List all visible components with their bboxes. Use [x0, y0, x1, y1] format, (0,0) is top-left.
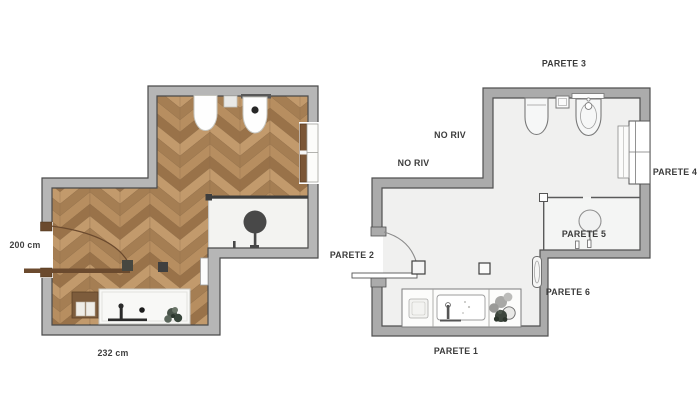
window-glass: [307, 124, 318, 182]
door-jamb-top: [41, 222, 53, 231]
window-frame: [629, 121, 650, 184]
label-no-riv-1: NO RIV: [434, 130, 466, 140]
label-parete-1: PARETE 1: [434, 346, 478, 356]
door-jamb-top: [371, 227, 386, 236]
bidet: [576, 98, 601, 136]
bathtub-faucet-stem: [447, 305, 450, 319]
label-parete-5: PARETE 5: [562, 229, 606, 239]
shower-glass-hinge: [206, 194, 213, 201]
vanity-cabinet: [72, 292, 98, 318]
door-jamb-bottom: [371, 278, 386, 287]
shower-valve: [250, 245, 259, 248]
door-leaf: [352, 273, 417, 278]
shower-handle-b: [588, 240, 592, 248]
bathtub-faucet-bar: [108, 319, 147, 322]
bathtub: [437, 295, 485, 320]
cabinet-drawer-right: [86, 302, 95, 316]
bathtub-drain: [139, 307, 145, 313]
bathtub-faucet-bar: [440, 320, 461, 322]
toilet: [525, 98, 548, 135]
window-frame-split: [300, 151, 307, 155]
window: [299, 122, 319, 184]
dimension-height-label: 200 cm: [9, 240, 40, 250]
toilet: [194, 96, 217, 131]
floorplan-canvas: 200 cm 232 cm: [0, 0, 700, 406]
shower-handle: [233, 241, 236, 248]
shower-head: [244, 211, 267, 234]
bidet-faucet: [585, 103, 592, 110]
shower-pipe: [254, 233, 257, 247]
window: [618, 121, 650, 184]
flush-plate: [224, 96, 237, 107]
door-leaf: [24, 269, 130, 274]
door-handle: [412, 261, 425, 274]
vanity: [402, 289, 521, 327]
bidet-faucet: [251, 106, 258, 113]
label-parete-3: PARETE 3: [542, 59, 586, 69]
bidet: [243, 97, 267, 133]
shower-handle-a: [576, 241, 580, 249]
door-handle: [122, 260, 133, 271]
towel-radiator: [201, 258, 209, 285]
cabinet-drawer-left: [76, 302, 85, 316]
floor-drain: [158, 262, 168, 272]
towel-radiator: [533, 257, 542, 288]
label-parete-2: PARETE 2: [330, 250, 374, 260]
label-parete-6: PARETE 6: [546, 287, 590, 297]
shower-glass-partition: [207, 196, 308, 199]
shower-glass-hinge: [540, 194, 548, 202]
label-no-riv-2: NO RIV: [398, 158, 430, 168]
left-plan: 200 cm 232 cm: [9, 86, 319, 358]
label-parete-4: PARETE 4: [653, 167, 697, 177]
floorplan-svg: 200 cm 232 cm: [0, 0, 700, 406]
dimension-width-label: 232 cm: [97, 348, 128, 358]
floor-drain: [479, 263, 490, 274]
right-plan: PARETE 3 NO RIV NO RIV PARETE 4 PARETE 5…: [330, 59, 697, 357]
cistern: [556, 96, 569, 108]
bathtub-faucet-stem: [120, 306, 123, 319]
